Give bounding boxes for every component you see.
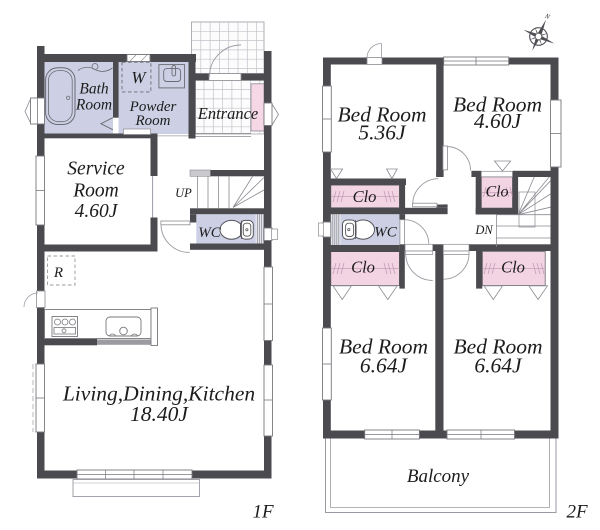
svg-text:18.40J: 18.40J [130,402,189,426]
svg-text:6.64J: 6.64J [360,354,409,378]
svg-text:Service: Service [67,159,125,180]
svg-text:R: R [53,265,63,281]
svg-text:5.36J: 5.36J [358,121,407,145]
svg-text:6.64J: 6.64J [474,354,523,378]
svg-text:4.60J: 4.60J [474,109,523,133]
svg-text:DN: DN [474,223,493,237]
svg-text:WC: WC [198,225,221,241]
svg-text:Bath: Bath [79,81,109,98]
svg-text:Clo: Clo [353,187,377,206]
svg-text:WC: WC [374,225,397,241]
svg-text:Entrance: Entrance [197,104,258,123]
svg-text:2F: 2F [566,502,588,523]
svg-text:UP: UP [175,186,192,200]
svg-text:1F: 1F [252,502,274,523]
svg-text:Room: Room [72,181,119,202]
svg-text:Room: Room [135,113,171,129]
svg-text:Clo: Clo [501,258,525,277]
svg-text:Balcony: Balcony [407,466,470,487]
svg-text:Clo: Clo [485,184,508,201]
svg-text:W: W [131,68,147,87]
svg-text:Clo: Clo [351,258,375,277]
svg-text:Room: Room [75,97,112,114]
svg-text:4.60J: 4.60J [75,201,119,222]
